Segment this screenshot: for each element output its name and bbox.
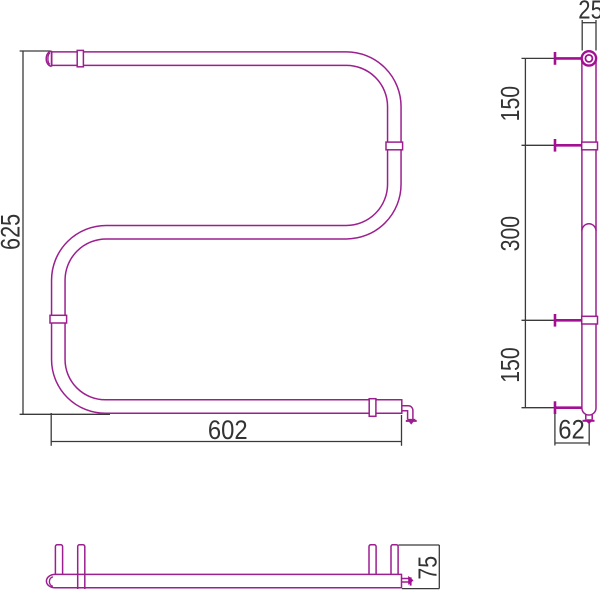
svg-text:75: 75 (414, 556, 444, 580)
svg-text:625: 625 (0, 214, 26, 250)
svg-text:62: 62 (558, 415, 585, 444)
svg-text:150: 150 (496, 347, 526, 383)
svg-text:150: 150 (496, 86, 526, 122)
svg-text:300: 300 (496, 216, 526, 252)
svg-text:25: 25 (578, 0, 600, 25)
svg-text:602: 602 (208, 416, 248, 445)
